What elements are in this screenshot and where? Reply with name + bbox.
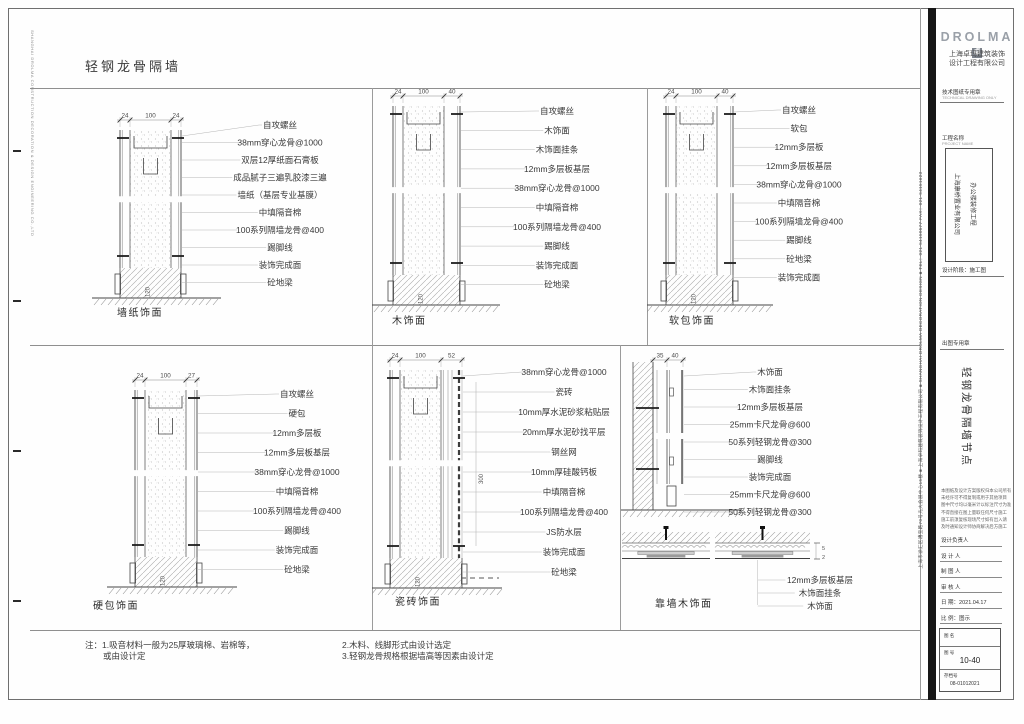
- detail-drawing-3: 2410040120自攻螺丝软包12mm多层板12mm多层板基层38mm穿心龙骨…: [647, 88, 920, 345]
- left-margin-vertical-text: SHANGHAI DROLMA CONSTRUCTION DECORATION …: [27, 30, 35, 270]
- svg-text:38mm穿心龙骨@1000: 38mm穿心龙骨@1000: [521, 367, 606, 377]
- svg-text:50系列轻钢龙骨@300: 50系列轻钢龙骨@300: [728, 437, 812, 447]
- svg-text:踢脚线: 踢脚线: [544, 241, 570, 251]
- stage-label: 设计阶段：施工图: [942, 266, 986, 274]
- svg-text:踢脚线: 踢脚线: [267, 243, 293, 253]
- svg-text:300: 300: [479, 473, 485, 484]
- titleblock-disclaimer: 本图纸及设计方案版权归本公司所有未经许可不得复制或用于其他项目图中尺寸均以毫米计…: [941, 487, 1013, 530]
- svg-text:12mm多层板基层: 12mm多层板基层: [766, 161, 832, 171]
- detail-cell-6: 3540木饰面木饰面挂条12mm多层板基层25mm卡尺龙骨@60050系列轻钢龙…: [620, 345, 920, 630]
- svg-text:装饰完成面: 装饰完成面: [259, 260, 302, 270]
- svg-text:砼地梁: 砼地梁: [267, 278, 293, 288]
- svg-text:10mm厚水泥砂浆粘贴层: 10mm厚水泥砂浆粘贴层: [518, 407, 610, 417]
- disclaimer-line: 图中尺寸均以毫米计以标注尺寸为准: [941, 501, 1013, 508]
- svg-text:木饰面挂条: 木饰面挂条: [749, 385, 792, 395]
- detail-drawing-6: 3540木饰面木饰面挂条12mm多层板基层25mm卡尺龙骨@60050系列轻钢龙…: [620, 345, 920, 630]
- sheet-title-vertical: 轻钢龙骨隔墙节点: [960, 361, 974, 473]
- detail-cell-4: 2410027120自攻螺丝硬包12mm多层板12mm多层板基层38mm穿心龙骨…: [35, 345, 372, 630]
- detail-drawing-4: 2410027120自攻螺丝硬包12mm多层板12mm多层板基层38mm穿心龙骨…: [35, 345, 372, 630]
- svg-text:24: 24: [172, 113, 180, 120]
- margin-tick: [13, 600, 21, 602]
- svg-text:砼地梁: 砼地梁: [786, 254, 812, 264]
- sheet-number-box: 图 名 图 号 10-40 存档号 08-01012021: [939, 628, 1001, 692]
- page-title: 轻钢龙骨隔墙: [85, 56, 181, 75]
- svg-text:24: 24: [121, 113, 129, 120]
- svg-text:25mm卡尺龙骨@600: 25mm卡尺龙骨@600: [730, 420, 811, 430]
- disclaimer-line: 本图纸及设计方案版权归本公司所有: [941, 487, 1013, 494]
- svg-text:100系列隔墙龙骨@400: 100系列隔墙龙骨@400: [520, 507, 608, 517]
- detail-caption-4: 硬包饰面: [93, 597, 139, 612]
- detail-drawing-5: 241005212030038mm穿心龙骨@1000瓷砖10mm厚水泥砂浆粘贴层…: [372, 345, 620, 630]
- svg-text:50系列轻钢龙骨@300: 50系列轻钢龙骨@300: [728, 507, 812, 517]
- detail-cell-3: 2410040120自攻螺丝软包12mm多层板12mm多层板基层38mm穿心龙骨…: [647, 88, 920, 345]
- titleblock-field-rule: [940, 577, 1002, 578]
- titleblock-field: 设 计 人: [941, 552, 961, 560]
- archive-label: 存档号: [944, 673, 958, 679]
- svg-text:100: 100: [160, 373, 171, 380]
- stamp1-rule: [940, 102, 1004, 103]
- archive-number: 08-01012021: [950, 681, 979, 687]
- svg-text:12mm多层板基层: 12mm多层板基层: [737, 402, 803, 412]
- sheet-box-rule1: [940, 646, 1000, 647]
- svg-text:25mm卡尺龙骨@600: 25mm卡尺龙骨@600: [730, 490, 811, 500]
- svg-text:120: 120: [161, 575, 167, 586]
- svg-text:中填隔音棉: 中填隔音棉: [276, 487, 319, 497]
- svg-text:38mm穿心龙骨@1000: 38mm穿心龙骨@1000: [237, 138, 322, 148]
- svg-text:瓷砖: 瓷砖: [555, 387, 573, 397]
- svg-text:装饰完成面: 装饰完成面: [276, 545, 319, 555]
- svg-text:120: 120: [416, 576, 422, 587]
- detail-caption-6: 靠墙木饰面: [655, 595, 713, 610]
- svg-text:40: 40: [671, 353, 679, 360]
- svg-text:12mm多层板基层: 12mm多层板基层: [524, 164, 590, 174]
- svg-text:12mm多层板基层: 12mm多层板基层: [264, 448, 330, 458]
- titleblock-field-rule: [940, 546, 1002, 547]
- svg-text:装饰完成面: 装饰完成面: [536, 260, 579, 270]
- titleblock-field: 设计负责人: [941, 536, 969, 544]
- contact-vertical-text: 上海市徐汇区漕宝路70号光大会展中心15楼 ■ 上海卓玛建筑装饰设计工程有限公司…: [918, 25, 926, 715]
- stamp1-sub: TECHNICAL DRAWING ONLY: [942, 95, 997, 100]
- svg-text:5: 5: [822, 546, 825, 552]
- svg-text:砼地梁: 砼地梁: [284, 565, 310, 575]
- svg-text:自攻螺丝: 自攻螺丝: [280, 389, 315, 399]
- svg-text:10mm厚硅酸钙板: 10mm厚硅酸钙板: [531, 467, 598, 477]
- disclaimer-line: 未经许可不得复制或用于其他项目: [941, 494, 1013, 501]
- titleblock-field-rule: [940, 623, 1002, 624]
- svg-text:24: 24: [136, 373, 144, 380]
- svg-text:38mm穿心龙骨@1000: 38mm穿心龙骨@1000: [756, 179, 841, 189]
- titleblock-field: 制 图 人: [941, 567, 961, 575]
- company-name-line1: 上海卓玛建筑装饰: [938, 50, 1016, 59]
- sheet-box-rule2: [940, 669, 1000, 670]
- detail-caption-3: 软包饰面: [669, 312, 715, 327]
- note-line: 3.轻钢龙骨规格根据墙高等因素由设计定: [342, 651, 494, 662]
- sheet-name-label: 图 名: [944, 633, 954, 639]
- svg-text:120: 120: [692, 293, 698, 304]
- detail-cell-1: 2410024120自攻螺丝38mm穿心龙骨@1000双层12厚纸面石膏板成品腻…: [35, 88, 372, 345]
- svg-text:100: 100: [145, 113, 156, 120]
- svg-text:100系列隔墙龙骨@400: 100系列隔墙龙骨@400: [253, 506, 341, 516]
- svg-text:踢脚线: 踢脚线: [284, 526, 310, 536]
- svg-text:40: 40: [721, 89, 729, 96]
- project-name-col2: 办公楼装修工程: [970, 152, 978, 256]
- svg-text:双层12厚纸面石膏板: 双层12厚纸面石膏板: [241, 155, 319, 165]
- svg-text:自攻螺丝: 自攻螺丝: [782, 105, 817, 115]
- detail-caption-1: 墙纸饰面: [117, 304, 163, 319]
- svg-text:24: 24: [667, 89, 675, 96]
- titleblock-field: 审 核 人: [941, 583, 961, 591]
- stamp2-rule: [940, 349, 1004, 350]
- svg-text:27: 27: [188, 373, 196, 380]
- margin-tick: [13, 150, 21, 152]
- titleblock-field: 比 例：图示: [941, 614, 970, 622]
- svg-text:100系列隔墙龙骨@400: 100系列隔墙龙骨@400: [755, 217, 843, 227]
- svg-text:自攻螺丝: 自攻螺丝: [540, 106, 575, 116]
- svg-text:砼地梁: 砼地梁: [551, 567, 577, 577]
- svg-text:100系列隔墙龙骨@400: 100系列隔墙龙骨@400: [236, 225, 324, 235]
- svg-text:硬包: 硬包: [288, 409, 306, 419]
- titleblock-black-bar: [928, 8, 936, 700]
- svg-text:墙纸（基层专业基膜）: 墙纸（基层专业基膜）: [237, 190, 322, 200]
- project-name-col1: 上海康桥置业有限公司: [954, 152, 962, 256]
- detail-cell-5: 241005212030038mm穿心龙骨@1000瓷砖10mm厚水泥砂浆粘贴层…: [372, 345, 620, 630]
- svg-text:40: 40: [448, 89, 456, 96]
- detail-caption-5: 瓷砖饰面: [395, 593, 441, 608]
- disclaimer-line: 不得直接在图上量取任何尺寸施工: [941, 509, 1013, 516]
- svg-text:100: 100: [415, 353, 426, 360]
- svg-text:38mm穿心龙骨@1000: 38mm穿心龙骨@1000: [514, 183, 599, 193]
- detail-cell-2: 2410040120自攻螺丝木饰面木饰面挂条12mm多层板基层38mm穿心龙骨@…: [372, 88, 647, 345]
- project-label-sub: PROJECT NAME: [942, 141, 973, 146]
- company-logo-text: DROLMA: [941, 30, 1014, 44]
- svg-text:木饰面挂条: 木饰面挂条: [536, 145, 579, 155]
- svg-text:木饰面挂条: 木饰面挂条: [799, 588, 842, 598]
- svg-text:成品腻子三遍乳胶漆三遍: 成品腻子三遍乳胶漆三遍: [233, 173, 327, 183]
- svg-text:木饰面: 木饰面: [757, 367, 783, 377]
- general-notes-col1: 注：1.吸音材料一般为25厚玻璃棉、岩棉等，或由设计定: [85, 640, 255, 662]
- titleblock-field-rule: [940, 608, 1002, 609]
- titleblock-field-rule: [940, 561, 1002, 562]
- note-line: 2.木料、线脚形式由设计选定: [342, 640, 494, 651]
- svg-text:装饰完成面: 装饰完成面: [543, 547, 586, 557]
- svg-text:木饰面: 木饰面: [544, 125, 570, 135]
- svg-text:35: 35: [656, 353, 664, 360]
- titleblock-field: 日 期：2021.04.17: [941, 598, 987, 606]
- svg-text:软包: 软包: [790, 124, 808, 134]
- svg-text:12mm多层板: 12mm多层板: [272, 428, 322, 438]
- margin-tick: [13, 450, 21, 452]
- detail-drawing-2: 2410040120自攻螺丝木饰面木饰面挂条12mm多层板基层38mm穿心龙骨@…: [372, 88, 647, 345]
- svg-text:中填隔音棉: 中填隔音棉: [536, 203, 579, 213]
- svg-text:24: 24: [394, 89, 402, 96]
- svg-text:100: 100: [418, 89, 429, 96]
- svg-text:自攻螺丝: 自攻螺丝: [263, 120, 298, 130]
- svg-text:踢脚线: 踢脚线: [757, 455, 783, 465]
- svg-text:100系列隔墙龙骨@400: 100系列隔墙龙骨@400: [513, 222, 601, 232]
- general-notes-col2: 2.木料、线脚形式由设计选定3.轻钢龙骨规格根据墙高等因素由设计定: [342, 640, 494, 662]
- svg-text:120: 120: [146, 286, 152, 297]
- titleblock-field-rule: [940, 592, 1002, 593]
- svg-text:JS防水层: JS防水层: [546, 527, 581, 537]
- svg-text:装饰完成面: 装饰完成面: [749, 472, 792, 482]
- svg-text:木饰面: 木饰面: [807, 601, 833, 611]
- svg-text:12mm多层板: 12mm多层板: [774, 142, 824, 152]
- company-name: 上海卓玛建筑装饰 设计工程有限公司: [938, 50, 1016, 68]
- svg-text:中填隔音棉: 中填隔音棉: [259, 208, 302, 218]
- company-name-line2: 设计工程有限公司: [938, 59, 1016, 68]
- note-line: 注：1.吸音材料一般为25厚玻璃棉、岩棉等，: [85, 640, 255, 651]
- detail-caption-2: 木饰面: [392, 312, 427, 327]
- svg-text:砼地梁: 砼地梁: [544, 280, 570, 290]
- grid-rule-bottom: [30, 630, 920, 631]
- margin-tick: [13, 300, 21, 302]
- drawing-sheet: 轻钢龙骨隔墙 2410024120自攻螺丝38mm穿心龙骨@1000双层12厚纸…: [0, 0, 1024, 724]
- sheet-number: 10-40: [940, 656, 1000, 665]
- stamp2-label: 出图专用章: [942, 339, 970, 347]
- note-line: 或由设计定: [85, 651, 255, 662]
- disclaimer-line: 施工前须复核现场尺寸如有出入请: [941, 516, 1013, 523]
- svg-text:24: 24: [391, 353, 399, 360]
- svg-text:钢丝网: 钢丝网: [551, 447, 577, 457]
- svg-text:装饰完成面: 装饰完成面: [778, 272, 821, 282]
- svg-text:踢脚线: 踢脚线: [786, 235, 812, 245]
- svg-text:中填隔音棉: 中填隔音棉: [543, 487, 586, 497]
- svg-text:中填隔音棉: 中填隔音棉: [778, 198, 821, 208]
- svg-text:38mm穿心龙骨@1000: 38mm穿心龙骨@1000: [254, 467, 339, 477]
- svg-text:52: 52: [448, 353, 456, 360]
- svg-text:20mm厚水泥砂找平层: 20mm厚水泥砂找平层: [522, 427, 605, 437]
- detail-drawing-1: 2410024120自攻螺丝38mm穿心龙骨@1000双层12厚纸面石膏板成品腻…: [35, 88, 372, 345]
- disclaimer-line: 及时通知设计师协商解决后方施工: [941, 523, 1013, 530]
- svg-text:2: 2: [822, 555, 825, 561]
- stage-rule: [940, 276, 1004, 277]
- svg-text:120: 120: [419, 293, 425, 304]
- svg-text:100: 100: [691, 89, 702, 96]
- svg-text:12mm多层板基层: 12mm多层板基层: [787, 575, 853, 585]
